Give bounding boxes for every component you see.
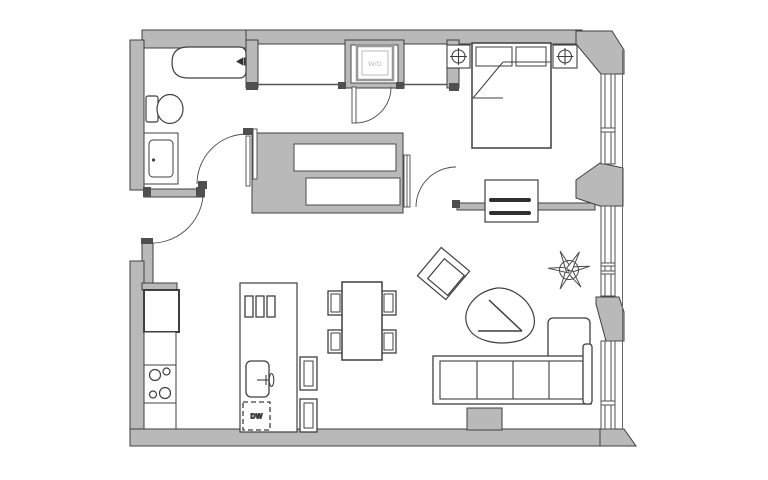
vanity-faucet-icon [152, 158, 155, 161]
dining [328, 282, 396, 360]
sofa-right-arm [583, 344, 592, 404]
bathroom-door-leaf [246, 136, 250, 186]
entry-door-arc [148, 197, 203, 243]
bathroom-door-arc [197, 134, 247, 184]
closet-slider-leaf [253, 129, 257, 179]
toilet-tank [146, 96, 158, 122]
kitchen: DW [144, 283, 317, 432]
pillow-right [516, 47, 546, 66]
bedroom-window [601, 74, 615, 164]
corner-southeast [600, 429, 636, 446]
coffee-table [466, 288, 535, 343]
living-window-upper [601, 206, 615, 296]
wd-wall-cap-left [338, 82, 346, 89]
column [467, 408, 502, 430]
living-room [417, 247, 592, 404]
living-window-lower [601, 341, 615, 429]
bottom-wall [130, 429, 624, 446]
top-wall-bathroom [142, 30, 246, 48]
tub-closet-wall [246, 40, 258, 88]
island-drawer-bank [245, 296, 275, 317]
floor-plan: W/D [0, 0, 768, 480]
wd-wall-cap-right [396, 82, 404, 89]
pillow-left [476, 47, 512, 66]
bar-stools [300, 357, 317, 432]
entry-wall-stub [144, 189, 204, 197]
left-wall-upper [130, 40, 144, 190]
tub-wall-cap [246, 82, 258, 90]
plant-icon [548, 251, 590, 289]
tv-living-side [489, 211, 531, 215]
windows [601, 50, 623, 429]
entry-wall-cap-left [143, 187, 151, 197]
wd-door-arc [355, 87, 391, 123]
refrigerator [144, 290, 179, 332]
dining-table [342, 282, 382, 360]
bathroom [144, 47, 246, 184]
bath-door-hinge [198, 181, 207, 189]
bathtub [172, 47, 246, 78]
counter-end-panel [142, 283, 177, 290]
window-pier-lower [596, 297, 624, 341]
wd-label: W/D [368, 61, 382, 68]
toilet-bowl [157, 95, 183, 124]
floor-plan-drawing: W/D [0, 0, 768, 480]
corner-northeast [576, 31, 624, 74]
bedroom-door-hinge [452, 200, 460, 208]
counter-run [144, 332, 176, 429]
wd-door-leaf [352, 87, 356, 123]
mid-closet-upper-interior [294, 144, 396, 171]
mid-closet-lower-interior [306, 178, 400, 205]
sofa-cushions [440, 361, 583, 399]
closet2-wall-cap [449, 83, 459, 91]
dishwasher-label: DW [250, 414, 262, 421]
bedroom-door-arc [416, 167, 456, 207]
window-pier-upper [576, 163, 623, 206]
tv-bedroom-side [489, 198, 531, 202]
bedroom [447, 43, 577, 222]
vanity-sink [149, 140, 173, 177]
washer-dryer: W/D [357, 46, 393, 80]
